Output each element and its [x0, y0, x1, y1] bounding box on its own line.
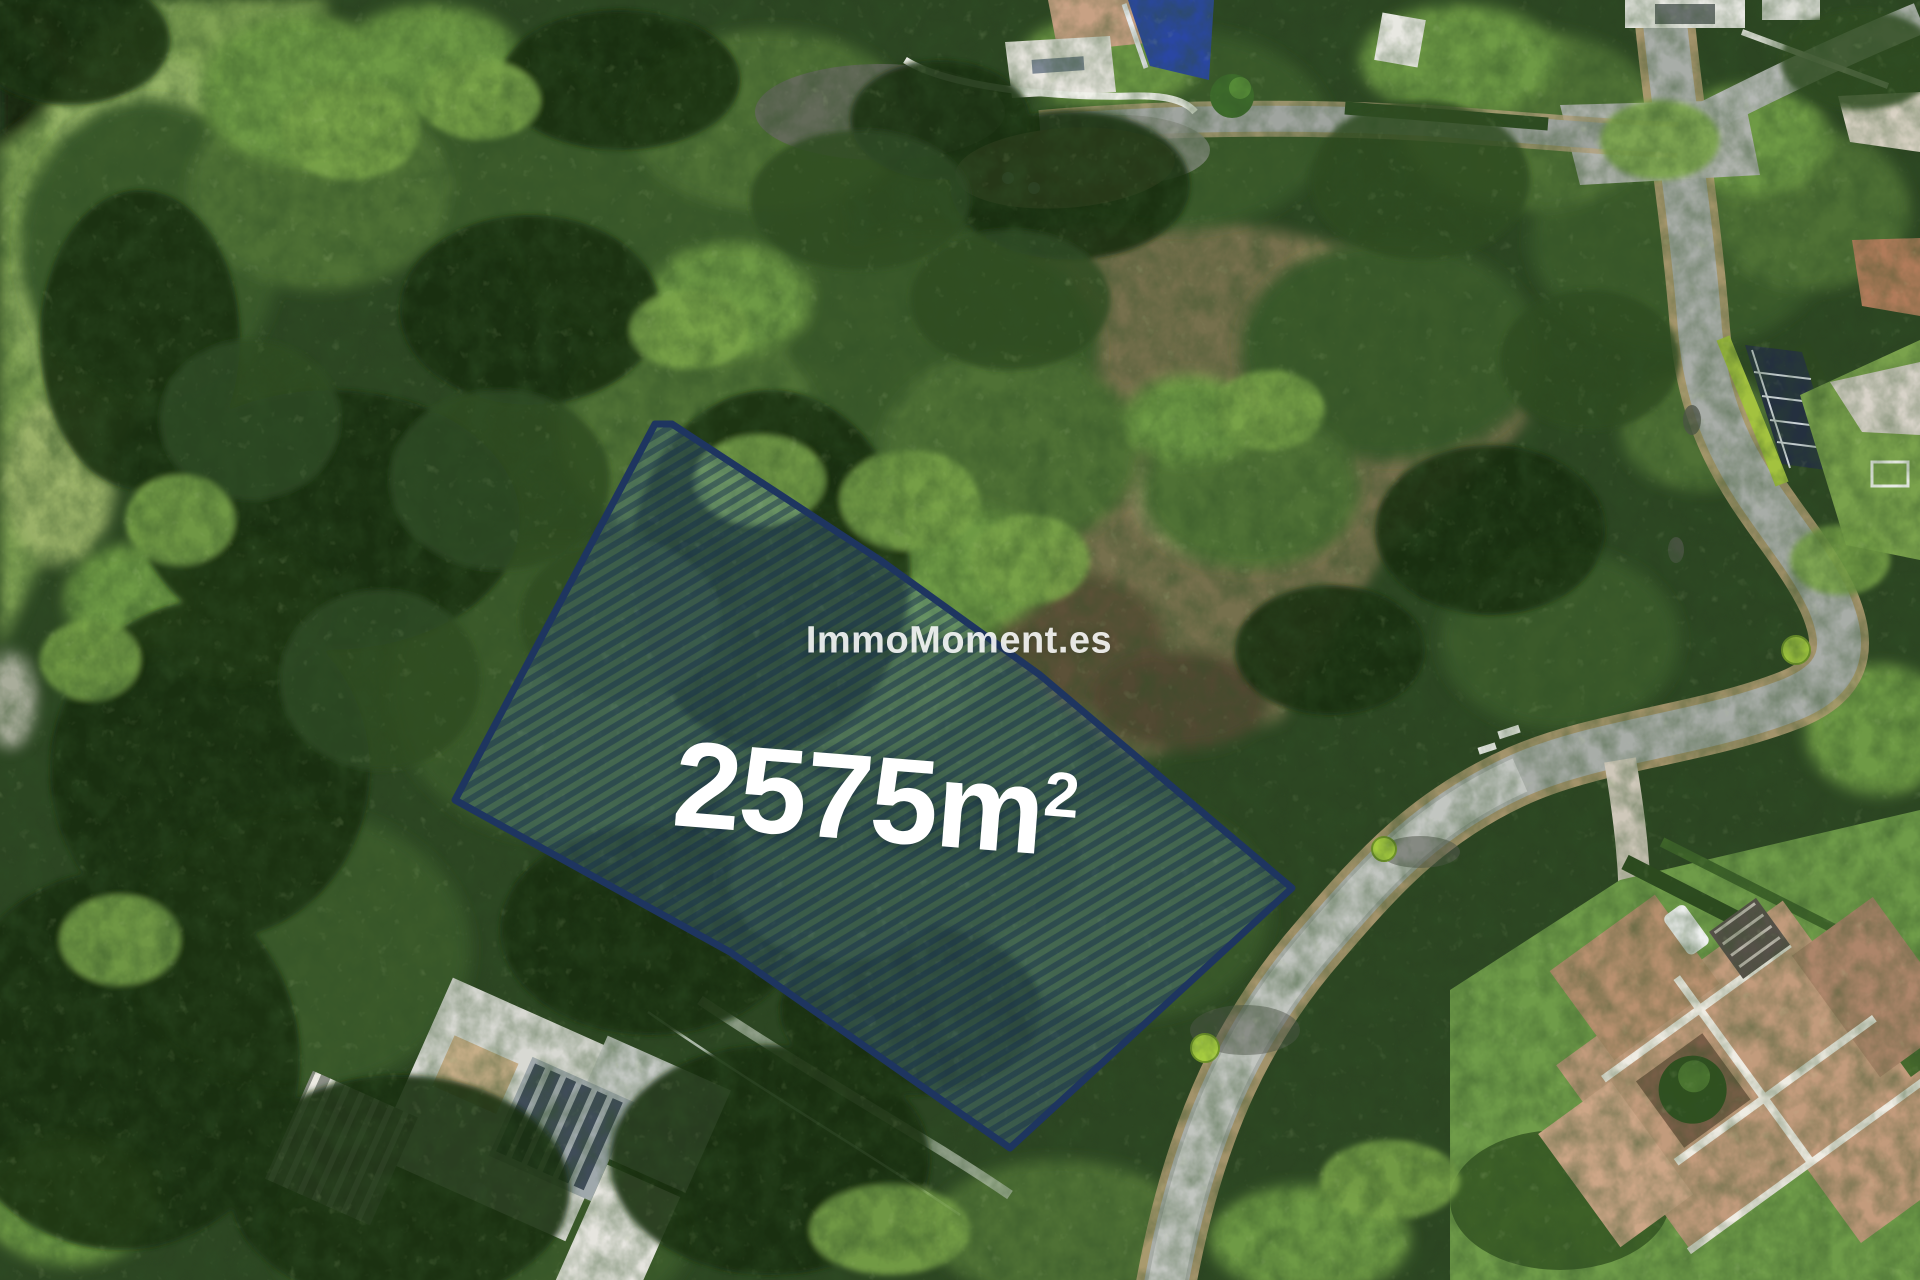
area-exponent: 2 — [1041, 759, 1082, 832]
area-unit: m — [931, 736, 1048, 880]
aerial-photo: 2575m2 ImmoMoment.es — [0, 0, 1920, 1280]
watermark: ImmoMoment.es — [806, 620, 1112, 663]
area-value: 2575 — [669, 715, 942, 871]
